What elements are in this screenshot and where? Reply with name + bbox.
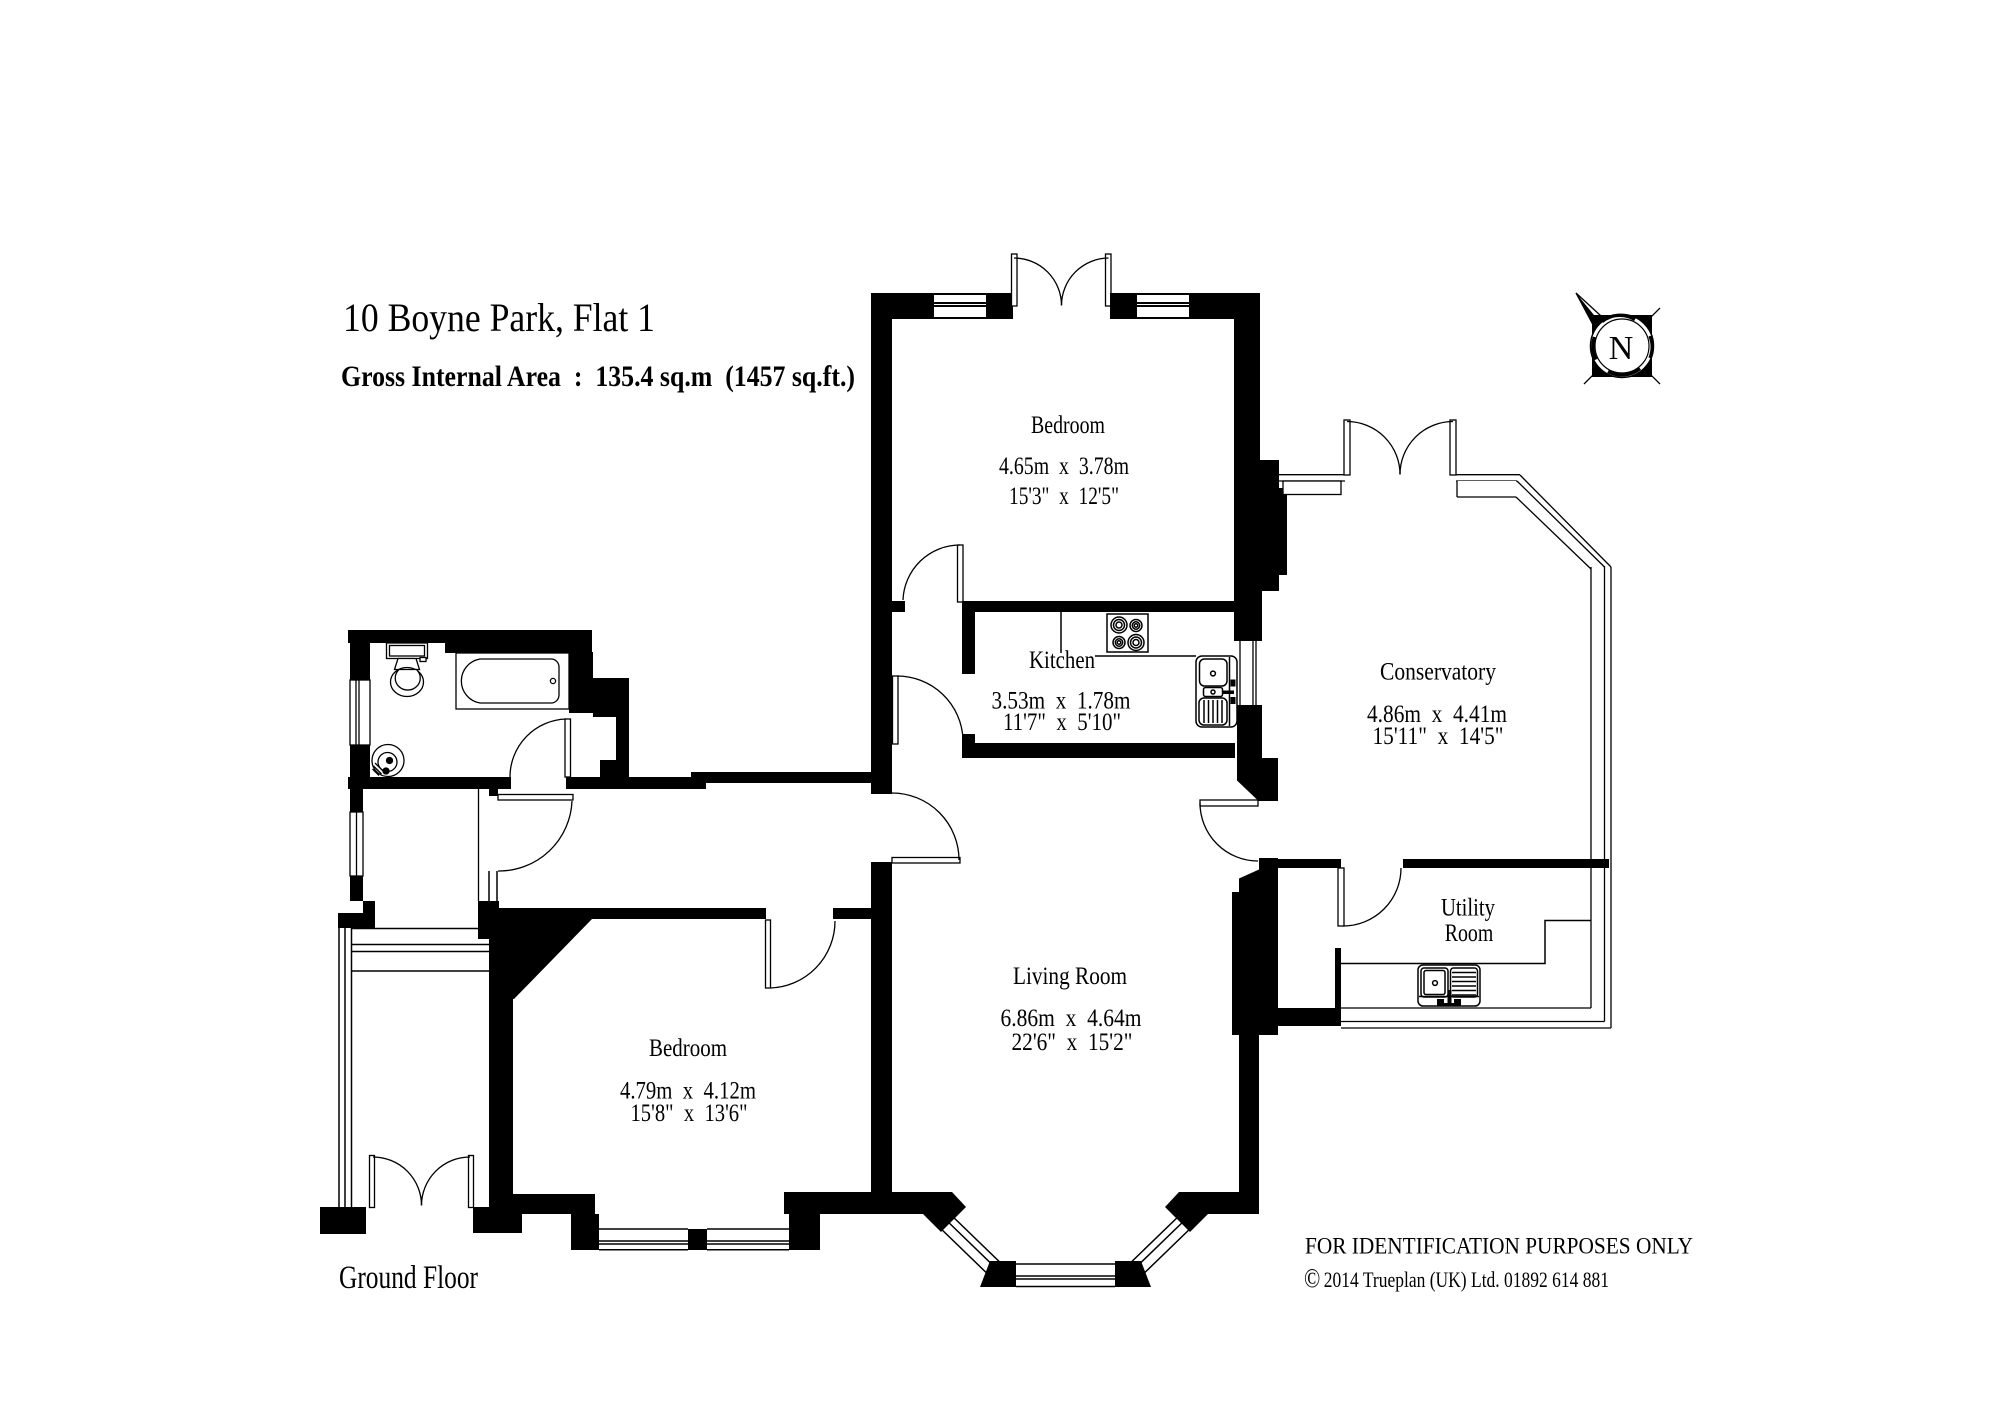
svg-text:© 2014 Trueplan (UK) Ltd. 0189: © 2014 Trueplan (UK) Ltd. 01892 614 881 [1304,1263,1609,1293]
svg-text:Utility: Utility [1441,895,1495,922]
svg-text:4.65m x 3.78m: 4.65m x 3.78m [999,453,1129,480]
svg-text:Kitchen: Kitchen [1029,647,1095,674]
svg-text:15'11" x 14'5": 15'11" x 14'5" [1373,723,1504,750]
svg-text:15'8" x 13'6": 15'8" x 13'6" [631,1100,748,1127]
svg-text:Ground Floor: Ground Floor [339,1260,478,1296]
svg-text:N: N [1609,330,1634,367]
svg-text:10 Boyne Park, Flat 1: 10 Boyne Park, Flat 1 [343,295,655,340]
svg-text:Living Room: Living Room [1013,963,1127,990]
svg-text:Room: Room [1445,920,1494,947]
svg-text:15'3" x 12'5": 15'3" x 12'5" [1009,483,1119,510]
svg-text:6.86m x 4.64m: 6.86m x 4.64m [1001,1005,1142,1032]
svg-text:22'6" x 15'2": 22'6" x 15'2" [1012,1029,1133,1056]
svg-text:FOR IDENTIFICATION PURPOSES ON: FOR IDENTIFICATION PURPOSES ONLY [1305,1234,1693,1259]
svg-text:Gross Internal Area : 135.4: Gross Internal Area : 135.4 sq.m (1457 s… [341,361,855,393]
svg-text:Bedroom: Bedroom [1031,412,1105,439]
svg-text:Conservatory: Conservatory [1380,659,1496,686]
svg-text:11'7" x 5'10": 11'7" x 5'10" [1003,709,1121,736]
svg-text:Bedroom: Bedroom [649,1035,727,1062]
